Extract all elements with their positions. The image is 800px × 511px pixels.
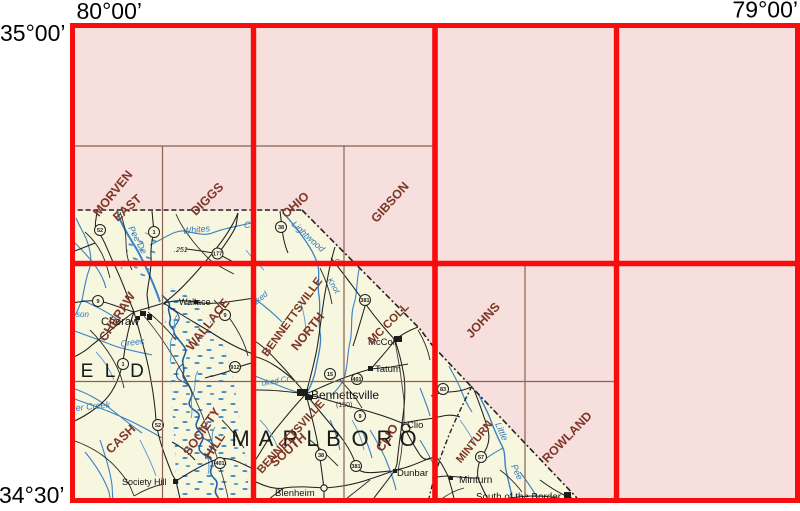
svg-text:38: 38 [278, 225, 284, 231]
svg-text:35°00’: 35°00’ [0, 20, 65, 46]
svg-text:401: 401 [215, 461, 224, 467]
svg-text:O: O [399, 426, 416, 451]
svg-text:Tatum: Tatum [375, 364, 401, 375]
svg-text:38: 38 [318, 453, 324, 459]
svg-text:15: 15 [327, 372, 333, 378]
svg-text:Society Hill: Society Hill [122, 477, 167, 487]
svg-text:.251: .251 [174, 247, 188, 254]
svg-text:79°00’: 79°00’ [733, 0, 798, 23]
svg-text:Minturn: Minturn [459, 475, 492, 486]
svg-text:C: C [244, 220, 251, 230]
svg-text:L: L [306, 426, 318, 451]
svg-text:52: 52 [155, 423, 161, 429]
svg-text:M: M [231, 426, 249, 451]
svg-text:34°30’: 34°30’ [0, 482, 64, 508]
svg-text:L: L [105, 361, 116, 382]
svg-text:52: 52 [97, 228, 103, 234]
svg-text:Wallace: Wallace [179, 297, 211, 307]
svg-text:Bennettsville: Bennettsville [311, 388, 379, 402]
svg-text:177: 177 [213, 252, 222, 258]
svg-text:912: 912 [230, 365, 239, 371]
svg-text:A: A [259, 426, 274, 451]
svg-text:381: 381 [360, 298, 369, 304]
svg-text:83: 83 [440, 387, 446, 393]
svg-text:9: 9 [358, 414, 361, 420]
svg-text:E: E [81, 361, 94, 382]
svg-text:O: O [351, 426, 368, 451]
svg-text:1: 1 [152, 230, 155, 236]
svg-text:80°00’: 80°00’ [77, 0, 142, 24]
svg-text:381: 381 [351, 464, 360, 470]
svg-text:Dunbar: Dunbar [397, 468, 428, 479]
svg-text:Blenheim: Blenheim [275, 488, 315, 499]
svg-text:1: 1 [121, 362, 124, 368]
svg-text:B: B [326, 426, 341, 451]
svg-text:57: 57 [478, 455, 484, 461]
svg-text:9: 9 [96, 299, 99, 305]
svg-text:D: D [130, 361, 144, 382]
svg-text:son: son [76, 310, 89, 319]
